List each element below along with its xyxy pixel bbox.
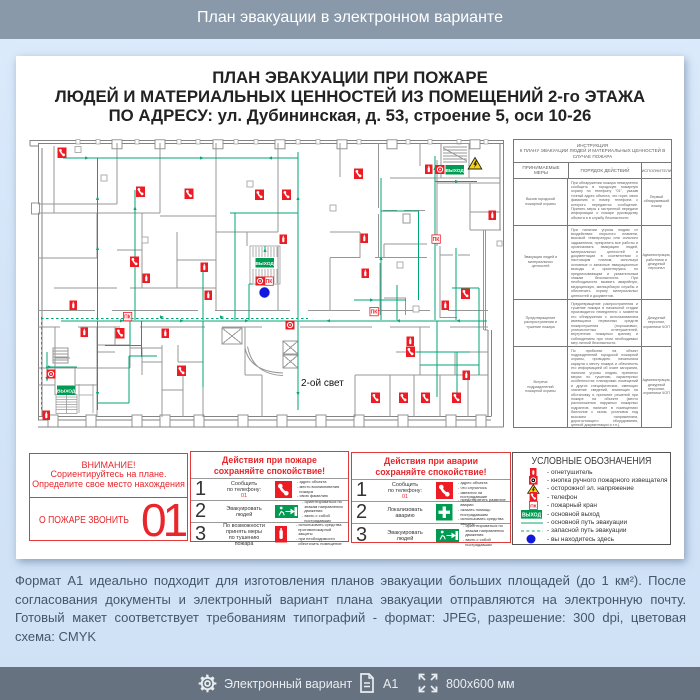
svg-text:ВЫХОД: ВЫХОД: [522, 512, 542, 518]
svg-text:2-ой свет: 2-ой свет: [301, 378, 344, 389]
